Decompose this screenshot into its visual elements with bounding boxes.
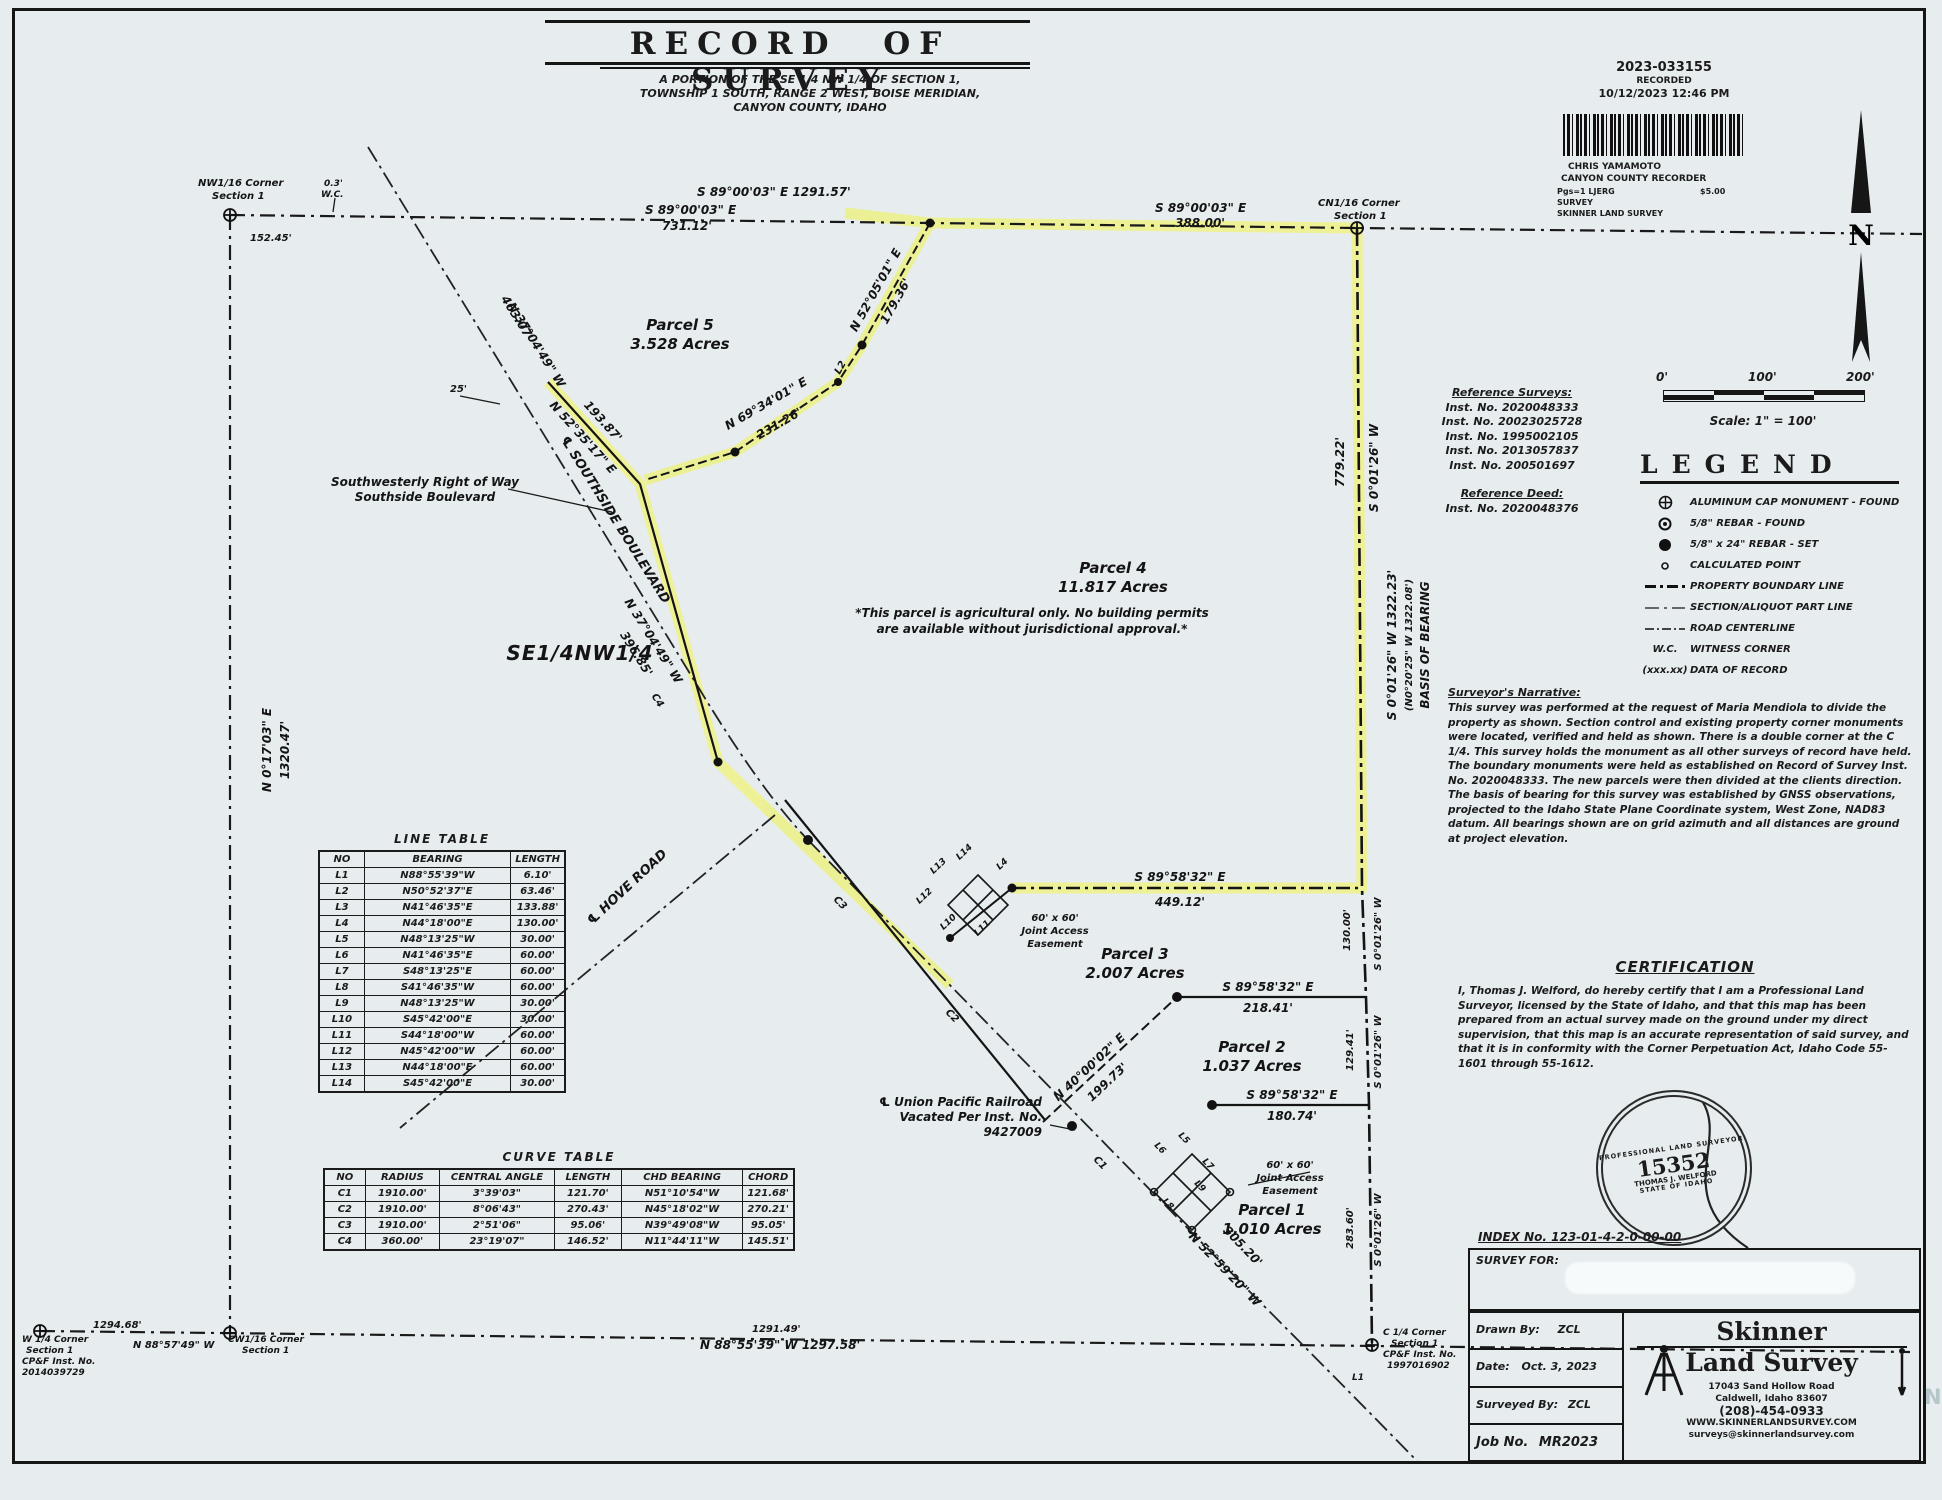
table-row: L13N44°18'00"E60.00' [319,1060,565,1076]
line-label: L12 [915,887,935,907]
table-cell: N41°46'35"E [364,948,510,964]
table-cell: S45°42'00"E [364,1076,510,1093]
recording-fee: $5.00 [1700,187,1725,196]
aluminum-cap-icon [1351,222,1363,234]
witness-corner-leader [333,198,335,212]
table-row: C4360.00'23°19'07"146.52'N11°44'11"W145.… [324,1234,794,1251]
narrative-body: This survey was performed at the request… [1448,701,1914,846]
map-label: W.C. [321,190,344,200]
rebar-dot [834,378,842,386]
drawn-by-value: ZCL [1558,1323,1581,1336]
corner-label: Section 1 [242,1346,289,1356]
corner-label: 2014039729 [22,1368,85,1378]
scale-tick-200: 200' [1846,370,1875,384]
rebar-dot [926,219,935,228]
table-cell: S41°46'35"W [364,980,510,996]
line-label: L11 [973,919,993,939]
map-label: S 89°58'32" E [1134,870,1226,884]
table-cell: L4 [319,916,364,932]
recording-barcode [1563,114,1746,156]
rebar-monuments [714,219,1218,1132]
table-cell: N45°42'00"W [364,1044,510,1060]
parcel3-label: Parcel 3 [1101,945,1168,963]
map-label: N 52°59'20" W [1186,1229,1264,1310]
index-number: INDEX No. 123-01-4-2-0-00-00 [1478,1230,1681,1244]
rebar-dot [731,448,740,457]
table-cell: 8°06'43" [440,1202,555,1218]
rebar-dot [858,341,867,350]
parcel2-acres: 1.037 Acres [1202,1057,1301,1075]
map-label: S 89°00'03" E [645,203,737,217]
legend-item: ROAD CENTERLINE [1640,618,1899,639]
column-header: CENTRAL ANGLE [440,1169,555,1186]
legend-item: 5/8" x 24" REBAR - SET [1640,534,1899,555]
table-cell: L3 [319,900,364,916]
survey-sheet: NW1/16 Corner Section 1 152.45' 0.3' W.C… [0,0,1942,1500]
legend-item: CALCULATED POINT [1640,555,1899,576]
drawn-by-label: Drawn By: [1476,1323,1540,1336]
column-header: RADIUS [365,1169,439,1186]
table-row: L11S44°18'00"W60.00' [319,1028,565,1044]
basis-of-bearing: (N0°20'25" W 1322.08') [1404,579,1415,711]
parcel4-acres: 11.817 Acres [1058,578,1168,596]
line-label: L9 [1192,1179,1208,1195]
recording-pages: Pgs=1 LJERG [1557,187,1615,196]
rebar-dot [946,934,954,942]
witness-corner-symbol: W.C. [1640,644,1690,655]
map-label: S 89°00'03" E 1291.57' [697,185,851,199]
title-rule-bottom [545,62,1030,65]
table-cell: 146.52' [554,1234,621,1251]
certification-title: CERTIFICATION [1455,958,1915,976]
map-label: 25' [450,384,467,395]
table-cell: 3°39'03" [440,1186,555,1202]
firm-website: WWW.SKINNERLANDSURVEY.COM [1624,1417,1919,1429]
legend-label: PROPERTY BOUNDARY LINE [1690,581,1844,592]
corner-label: CP&F Inst. No. [22,1357,95,1367]
table-header-row: NO RADIUS CENTRAL ANGLE LENGTH CHD BEARI… [324,1169,794,1186]
corner-label: W 1/4 Corner [22,1335,89,1345]
column-header: NO [319,851,364,868]
offset-25-leader [460,396,500,404]
table-cell: S44°18'00"W [364,1028,510,1044]
legend-item: SECTION/ALIQUOT PART LINE [1640,597,1899,618]
table-cell: 1910.00' [365,1202,439,1218]
property-boundary-line-icon [1640,585,1690,588]
table-cell: N39°49'08"W [621,1218,743,1234]
curve-table: NO RADIUS CENTRAL ANGLE LENGTH CHD BEARI… [323,1168,795,1251]
curve-table-head: NO RADIUS CENTRAL ANGLE LENGTH CHD BEARI… [324,1169,794,1186]
map-label: 283.60' [1345,1207,1356,1249]
line-table-body: L1N88°55'39"W6.10'L2N50°52'37"E63.46'L3N… [319,868,565,1093]
corner-label: Section 1 [1391,1339,1438,1349]
line-label: L6 [1152,1141,1168,1157]
map-label: N 88°57'49" W [133,1340,215,1351]
legend-label: WITNESS CORNER [1690,644,1791,655]
drawn-by-row: Drawn By: ZCL [1470,1313,1622,1350]
map-label: N 37°04'49" W [505,300,569,391]
legend-item: W.C. WITNESS CORNER [1640,639,1899,660]
subtitle-line: A PORTION OF THE SE 1/4 NW 1/4 OF SECTIO… [580,73,1040,87]
road-name-label: ℄ HOVE ROAD [585,847,671,928]
table-cell: L11 [319,1028,364,1044]
surveyors-narrative: Surveyor's Narrative: This survey was pe… [1448,686,1914,846]
table-cell: L2 [319,884,364,900]
highlight-east-boundary [845,213,1362,888]
table-cell: 121.70' [554,1186,621,1202]
table-cell: L9 [319,996,364,1012]
railroad-label: Vacated Per Inst. No. [900,1110,1042,1124]
n40-diagonal [1043,997,1177,1122]
table-cell: 30.00' [511,1076,565,1093]
table-row: C21910.00'8°06'43"270.43'N45°18'02"W270.… [324,1202,794,1218]
table-row: L9N48°13'25"W30.00' [319,996,565,1012]
job-value: MR2023 [1539,1435,1598,1450]
table-cell: L1 [319,868,364,884]
aluminum-cap-icon [1366,1339,1378,1351]
map-label: 388.00' [1175,216,1225,230]
surveyed-by-label: Surveyed By: [1476,1398,1558,1411]
calculated-point-icon [1640,561,1690,571]
rebar-dot [803,835,813,845]
map-label: 152.45' [250,233,292,244]
map-label: Section 1 [212,191,265,202]
table-cell: 60.00' [511,1044,565,1060]
recording-number: 2023-033155 [1583,60,1745,75]
table-cell: 60.00' [511,980,565,996]
railroad-label: ℄ Union Pacific Railroad [879,1095,1042,1109]
table-cell: N48°13'25"W [364,996,510,1012]
section-line-icon [1640,607,1690,609]
table-cell: L8 [319,980,364,996]
table-cell: N44°18'00"E [364,1060,510,1076]
table-cell: 23°19'07" [440,1234,555,1251]
table-cell: 60.00' [511,948,565,964]
table-row: L12N45°42'00"W60.00' [319,1044,565,1060]
reference-item: Inst. No. 2020048376 [1398,502,1626,517]
table-row: C11910.00'3°39'03"121.70'N51°10'54"W121.… [324,1186,794,1202]
subtitle-line: TOWNSHIP 1 SOUTH, RANGE 2 WEST, BOISE ME… [580,87,1040,101]
easement1-label: 60' x 60' [1031,913,1078,924]
parcel5-acres: 3.528 Acres [630,335,729,353]
title-block-left: Drawn By: ZCL Date: Oct. 3, 2023 Surveye… [1470,1313,1624,1460]
parcel4-label: Parcel 4 [1079,559,1146,577]
date-value: Oct. 3, 2023 [1522,1360,1597,1373]
legend-label: 5/8" REBAR - FOUND [1690,518,1805,529]
firm-email: surveys@skinnerlandsurvey.com [1624,1429,1919,1441]
table-cell: C1 [324,1186,365,1202]
recording-requestor: SKINNER LAND SURVEY [1557,209,1663,218]
survey-for-box: SURVEY FOR: [1468,1248,1921,1311]
legend-label: CALCULATED POINT [1690,560,1800,571]
rebar-dot [1008,884,1017,893]
corner-label: C 1/4 Corner [1383,1328,1446,1338]
job-row: Job No. MR2023 [1470,1425,1622,1460]
corner-label: Section 1 [26,1346,73,1356]
table-cell: N11°44'11"W [621,1234,743,1251]
table-row: L1N88°55'39"W6.10' [319,868,565,884]
table-cell: N45°18'02"W [621,1202,743,1218]
narrative-title: Surveyor's Narrative: [1448,686,1914,699]
table-cell: C2 [324,1202,365,1218]
table-cell: 1910.00' [365,1218,439,1234]
watermark-text: NTAIN [1924,1385,1942,1409]
road-centerline-icon [1640,628,1690,630]
date-label: Date: [1476,1360,1510,1373]
tripod-logo-icon [1638,1341,1690,1399]
table-cell: 30.00' [511,1012,565,1028]
map-label: NW1/16 Corner [198,178,284,189]
title-rule-top [545,20,1030,23]
road-centerlines [368,147,1418,1462]
easement2-label: Joint Access [1254,1173,1323,1184]
map-label: 449.12' [1154,895,1205,909]
table-cell: N88°55'39"W [364,868,510,884]
curve-label: C2 [943,1007,961,1025]
title-block: Drawn By: ZCL Date: Oct. 3, 2023 Surveye… [1468,1311,1921,1462]
map-label: 1320.47' [278,721,292,779]
table-cell: N50°52'37"E [364,884,510,900]
line-label: L10 [939,913,959,933]
table-cell: C4 [324,1234,365,1251]
reference-item: Inst. No. 1995002105 [1398,430,1626,445]
table-cell: 63.46' [511,884,565,900]
recorder-title: CANYON COUNTY RECORDER [1561,174,1706,184]
plumb-bob-icon [1895,1347,1909,1407]
legend-item: (xxx.xx) DATA OF RECORD [1640,660,1899,681]
data-of-record-symbol: (xxx.xx) [1640,665,1690,676]
map-label: 731.12' [662,219,712,233]
scale-caption: Scale: 1" = 100' [1663,414,1863,428]
recording-recorded: RECORDED [1583,76,1745,86]
parcel3-acres: 2.007 Acres [1085,964,1184,982]
map-label: N 0°17'03" E [260,707,274,792]
map-label: S 0°01'26" W [1373,1192,1384,1266]
aluminum-cap-icon [1640,495,1690,510]
legend-item: 5/8" REBAR - FOUND [1640,513,1899,534]
table-cell: 60.00' [511,1028,565,1044]
parcel1-label: Parcel 1 [1238,1201,1305,1219]
curve-table-title: CURVE TABLE [323,1150,795,1164]
legend: LEGEND ALUMINUM CAP MONUMENT - FOUND 5/8… [1640,450,1899,681]
table-cell: L12 [319,1044,364,1060]
row-callout: Southwesterly Right of Way [331,475,520,489]
table-row: L4N44°18'00"E130.00' [319,916,565,932]
table-row: L7S48°13'25"E60.00' [319,964,565,980]
reference-surveys-title: Reference Surveys: [1398,386,1626,401]
table-row: C31910.00'2°51'06"95.06'N39°49'08"W95.05… [324,1218,794,1234]
table-row: L2N50°52'37"E63.46' [319,884,565,900]
table-row: L3N41°46'35"E133.88' [319,900,565,916]
table-cell: N44°18'00"E [364,916,510,932]
map-label: 130.00' [1342,909,1353,951]
table-row: L5N48°13'25"W30.00' [319,932,565,948]
corner-label: CP&F Inst. No. [1383,1350,1456,1360]
legend-label: ALUMINUM CAP MONUMENT - FOUND [1690,497,1899,508]
curve-label: C1 [1091,1154,1109,1172]
table-cell: 95.06' [554,1218,621,1234]
reference-item: Inst. No. 2013057837 [1398,444,1626,459]
rebar-dot [1172,992,1182,1002]
table-cell: 121.68' [743,1186,794,1202]
map-label: 129.41' [1345,1029,1356,1071]
map-label: Section 1 [1334,211,1387,222]
rebar-dot [1067,1121,1077,1131]
parcel4-note: *This parcel is agricultural only. No bu… [855,606,1208,620]
line-label: L4 [995,857,1011,872]
table-cell: L13 [319,1060,364,1076]
map-label: 0.3' [324,179,343,189]
scale-bar-bottom [1664,395,1864,400]
date-row: Date: Oct. 3, 2023 [1470,1350,1622,1387]
table-row: L14S45°42'00"E30.00' [319,1076,565,1093]
railroad-centerline [808,840,1418,1462]
rebar-found-icon [1640,517,1690,531]
map-label: S 89°00'03" E [1155,201,1247,215]
table-cell: L14 [319,1076,364,1093]
subtitle-line: CANYON COUNTY, IDAHO [580,101,1040,115]
table-cell: 30.00' [511,996,565,1012]
table-cell: 360.00' [365,1234,439,1251]
map-label: S 0°01'26" W [1373,1014,1384,1088]
line-table-title: LINE TABLE [318,832,566,846]
table-cell: 270.21' [743,1202,794,1218]
map-label: S 89°58'32" E [1246,1088,1338,1102]
map-label: S 0°01'26" W [1373,896,1384,970]
north-arrow-upper [1851,110,1871,213]
table-cell: 6.10' [511,868,565,884]
map-label: CN1/16 Corner [1318,198,1401,209]
legend-item: PROPERTY BOUNDARY LINE [1640,576,1899,597]
rebar-dot [1207,1100,1217,1110]
north-letter: N [1848,219,1874,252]
table-cell: 133.88' [511,900,565,916]
easement1-label: Joint Access [1019,926,1088,937]
curve-label: C3 [831,894,849,912]
legend-label: ROAD CENTERLINE [1690,623,1795,634]
map-label: L1 [1352,1373,1364,1383]
legend-label: 5/8" x 24" REBAR - SET [1690,539,1818,550]
table-cell: 60.00' [511,1060,565,1076]
line-table-head: NO BEARING LENGTH [319,851,565,868]
rebar-set-icon [1640,538,1690,552]
column-header: CHD BEARING [621,1169,743,1186]
table-cell: S48°13'25"E [364,964,510,980]
map-label: 1291.49' [752,1324,801,1335]
easement1-label: Easement [1027,939,1084,950]
row-boundary-railroad [785,800,1045,1120]
column-header: LENGTH [511,851,565,868]
recording-datetime: 10/12/2023 12:46 PM [1583,87,1745,100]
line-label: L14 [955,843,975,863]
map-label: N 88°55'39" W 1297.58' [700,1338,860,1352]
line-table: NO BEARING LENGTH L1N88°55'39"W6.10'L2N5… [318,850,566,1093]
firm-phone: (208)-454-0933 [1624,1405,1919,1417]
parcel2-label: Parcel 2 [1218,1038,1285,1056]
legend-label: SECTION/ALIQUOT PART LINE [1690,602,1853,613]
map-label: S 0°01'26" W [1367,423,1381,512]
table-cell: C3 [324,1218,365,1234]
recorder-name: CHRIS YAMAMOTO [1568,162,1661,172]
redacted-client-name [1565,1262,1855,1294]
scale-bar [1663,390,1865,402]
basis-of-bearing: BASIS OF BEARING [1418,581,1432,708]
title-subtitle: A PORTION OF THE SE 1/4 NW 1/4 OF SECTIO… [580,73,1040,115]
table-header-row: NO BEARING LENGTH [319,851,565,868]
table-row: L10S45°42'00"E30.00' [319,1012,565,1028]
table-cell: 2°51'06" [440,1218,555,1234]
row-callout: Southside Boulevard [355,490,496,504]
aluminum-cap-icon [224,209,236,221]
table-cell: N41°46'35"E [364,900,510,916]
title-block-right: Skinner Land Survey 17043 Sand Hollow Ro… [1624,1313,1919,1460]
scale-tick-100: 100' [1748,370,1777,384]
curve-table-body: C11910.00'3°39'03"121.70'N51°10'54"W121.… [324,1186,794,1251]
north-section-line [230,215,1922,234]
parcel5-label: Parcel 5 [646,316,713,334]
reference-item: Inst. No. 2020048333 [1398,401,1626,416]
table-cell: N48°13'25"W [364,932,510,948]
line-label: L7 [1200,1157,1216,1173]
reference-surveys: Reference Surveys: Inst. No. 2020048333 … [1398,386,1626,516]
reference-item: Inst. No. 200501697 [1398,459,1626,474]
column-header: NO [324,1169,365,1186]
table-cell: L5 [319,932,364,948]
easement2-label: 60' x 60' [1266,1160,1313,1171]
job-label: Job No. [1476,1435,1528,1450]
table-cell: 270.43' [554,1202,621,1218]
scale-tick-0: 0' [1656,370,1668,384]
table-row: L8S41°46'35"W60.00' [319,980,565,996]
recording-doc-type: SURVEY [1557,198,1593,207]
surveyed-by-row: Surveyed By: ZCL [1470,1388,1622,1425]
column-header: BEARING [364,851,510,868]
rebar-dot [714,758,723,767]
easement2-label: Easement [1262,1186,1319,1197]
map-label: 180.74' [1267,1109,1317,1123]
column-header: CHORD [743,1169,794,1186]
table-row: L6N41°46'35"E60.00' [319,948,565,964]
table-cell: 60.00' [511,964,565,980]
corner-label: 1997016902 [1387,1361,1450,1371]
map-label: 1294.68' [93,1320,142,1331]
title-rule-bottom2 [600,67,1030,69]
certification-body: I, Thomas J. Welford, do hereby certify … [1458,984,1914,1071]
column-header: LENGTH [554,1169,621,1186]
legend-label: DATA OF RECORD [1690,665,1788,676]
table-cell: L7 [319,964,364,980]
line-label: L13 [929,857,949,877]
map-label: 218.41' [1243,1001,1293,1015]
table-cell: 1910.00' [365,1186,439,1202]
curve-label: C4 [649,692,666,710]
map-label: S 89°58'32" E [1222,980,1314,994]
map-label: 779.22' [1333,437,1347,487]
table-cell: 30.00' [511,932,565,948]
legend-item: ALUMINUM CAP MONUMENT - FOUND [1640,492,1899,513]
legend-title: LEGEND [1640,450,1899,484]
railroad-label: 9427009 [984,1125,1042,1139]
parcel4-note: are available without jurisdictional app… [877,622,1189,636]
table-cell: 130.00' [511,916,565,932]
table-cell: L6 [319,948,364,964]
basis-of-bearing: S 0°01'26" W 1322.23' [1385,570,1399,720]
corner-label: CW1/16 Corner [228,1335,304,1345]
table-cell: L10 [319,1012,364,1028]
table-cell: N51°10'54"W [621,1186,743,1202]
table-cell: S45°42'00"E [364,1012,510,1028]
easement-2-outline [1154,1154,1230,1230]
